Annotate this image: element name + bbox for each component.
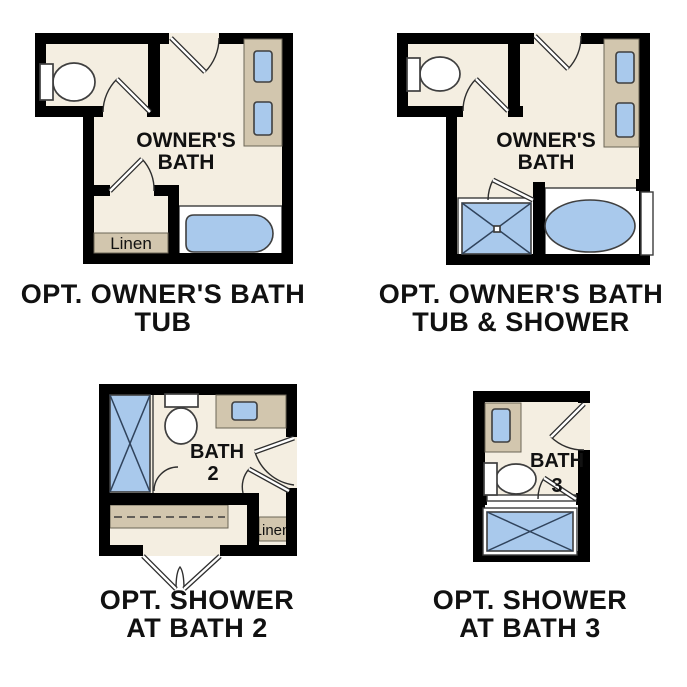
sink bbox=[492, 409, 510, 442]
floorplan-owner-bath-tub: Linen OWNER'S BATH bbox=[30, 28, 300, 268]
shower-partition bbox=[487, 495, 576, 501]
floorplan-shower-at-bath-2: Linen BATH 2 bbox=[90, 378, 305, 603]
caption-line: TUB bbox=[0, 308, 326, 336]
floorplan-owner-bath-tub-shower: OWNER'S BATH bbox=[390, 28, 660, 268]
room-label: BATH bbox=[530, 450, 584, 472]
linen-label: Linen bbox=[254, 522, 291, 539]
vanity-counter bbox=[216, 395, 286, 428]
caption-line: OPT. SHOWER bbox=[37, 586, 357, 614]
toilet-fixture bbox=[40, 63, 95, 101]
toilet-fixture bbox=[165, 394, 198, 444]
caption-line: OPT. OWNER'S BATH bbox=[356, 280, 686, 308]
tub-ledge bbox=[641, 192, 653, 255]
caption-line: TUB & SHOWER bbox=[356, 308, 686, 336]
floorplan-sheet: { "colors": { "background": "#ffffff", "… bbox=[0, 0, 687, 687]
linen-label: Linen bbox=[110, 234, 152, 253]
linen-closet: Linen bbox=[254, 517, 291, 541]
caption-line: OPT. SHOWER bbox=[370, 586, 687, 614]
shower bbox=[483, 508, 577, 555]
room-label: BATH bbox=[518, 151, 575, 174]
caption-line: OPT. OWNER'S BATH bbox=[0, 280, 326, 308]
room-label: 2 bbox=[207, 463, 218, 485]
closet bbox=[110, 505, 228, 528]
bathtub bbox=[186, 215, 273, 252]
room-label: OWNER'S bbox=[496, 129, 596, 152]
sink bbox=[254, 51, 272, 82]
vanity-counter bbox=[604, 39, 639, 147]
shower bbox=[110, 395, 153, 493]
vanity-counter bbox=[244, 39, 282, 146]
plan-caption: OPT. OWNER'S BATH TUB bbox=[0, 280, 326, 336]
sink bbox=[616, 103, 634, 137]
sink bbox=[254, 102, 272, 135]
room-label: OWNER'S bbox=[136, 129, 236, 152]
sink bbox=[232, 402, 257, 420]
shower bbox=[462, 203, 531, 254]
vanity-counter bbox=[485, 403, 521, 452]
plan-caption: OPT. SHOWER AT BATH 2 bbox=[37, 586, 357, 642]
room-label: BATH bbox=[158, 151, 215, 174]
toilet-fixture bbox=[484, 463, 536, 495]
linen-closet: Linen bbox=[94, 233, 168, 253]
toilet-fixture bbox=[407, 57, 460, 91]
room-label: BATH bbox=[190, 441, 244, 463]
plan-caption: OPT. OWNER'S BATH TUB & SHOWER bbox=[356, 280, 686, 336]
plan-caption: OPT. SHOWER AT BATH 3 bbox=[370, 586, 687, 642]
caption-line: AT BATH 2 bbox=[37, 614, 357, 642]
caption-line: AT BATH 3 bbox=[370, 614, 687, 642]
shower-drain bbox=[494, 226, 500, 232]
floorplan-shower-at-bath-3: BATH 3 bbox=[460, 385, 605, 565]
room-label: 3 bbox=[551, 475, 562, 497]
sink bbox=[616, 52, 634, 83]
